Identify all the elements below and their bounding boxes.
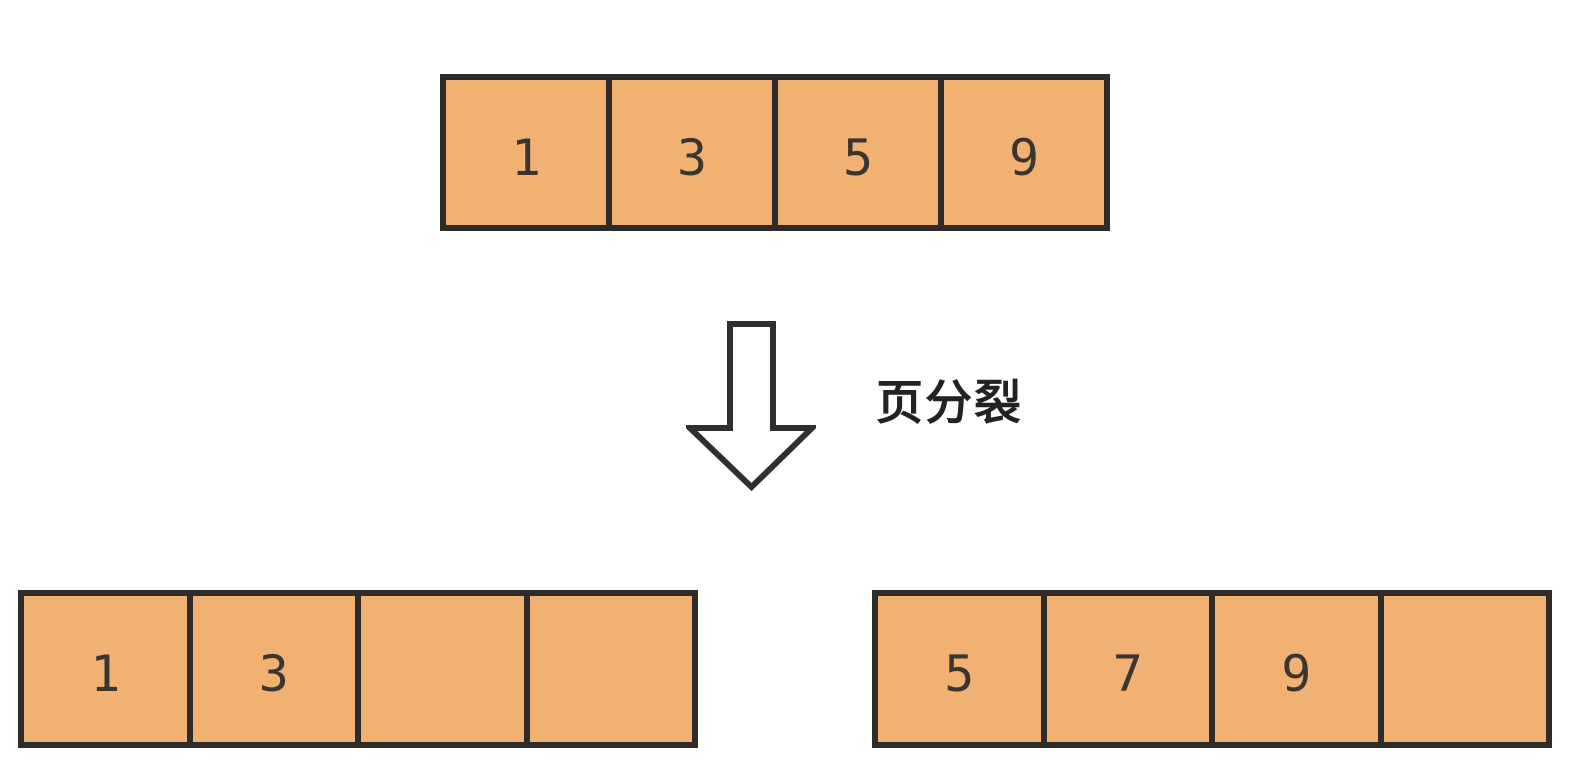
page-cell — [355, 590, 530, 748]
original-page-row: 1 3 5 9 — [440, 74, 1110, 231]
page-cell: 9 — [938, 74, 1110, 231]
page-cell: 1 — [440, 74, 612, 231]
page-cell — [524, 590, 699, 748]
split-page-left-row: 1 3 — [18, 590, 698, 748]
page-cell: 3 — [187, 590, 362, 748]
page-cell — [1378, 590, 1553, 748]
page-cell: 1 — [18, 590, 193, 748]
page-cell: 3 — [606, 74, 778, 231]
down-arrow-icon — [686, 320, 816, 492]
split-page-right-row: 5 7 9 — [872, 590, 1552, 748]
page-cell: 7 — [1041, 590, 1216, 748]
page-cell: 5 — [772, 74, 944, 231]
page-split-diagram: 1 3 5 9 页分裂 1 3 5 7 9 — [0, 0, 1584, 782]
page-cell: 5 — [872, 590, 1047, 748]
page-cell: 9 — [1209, 590, 1384, 748]
page-split-label: 页分裂 — [876, 364, 1023, 433]
